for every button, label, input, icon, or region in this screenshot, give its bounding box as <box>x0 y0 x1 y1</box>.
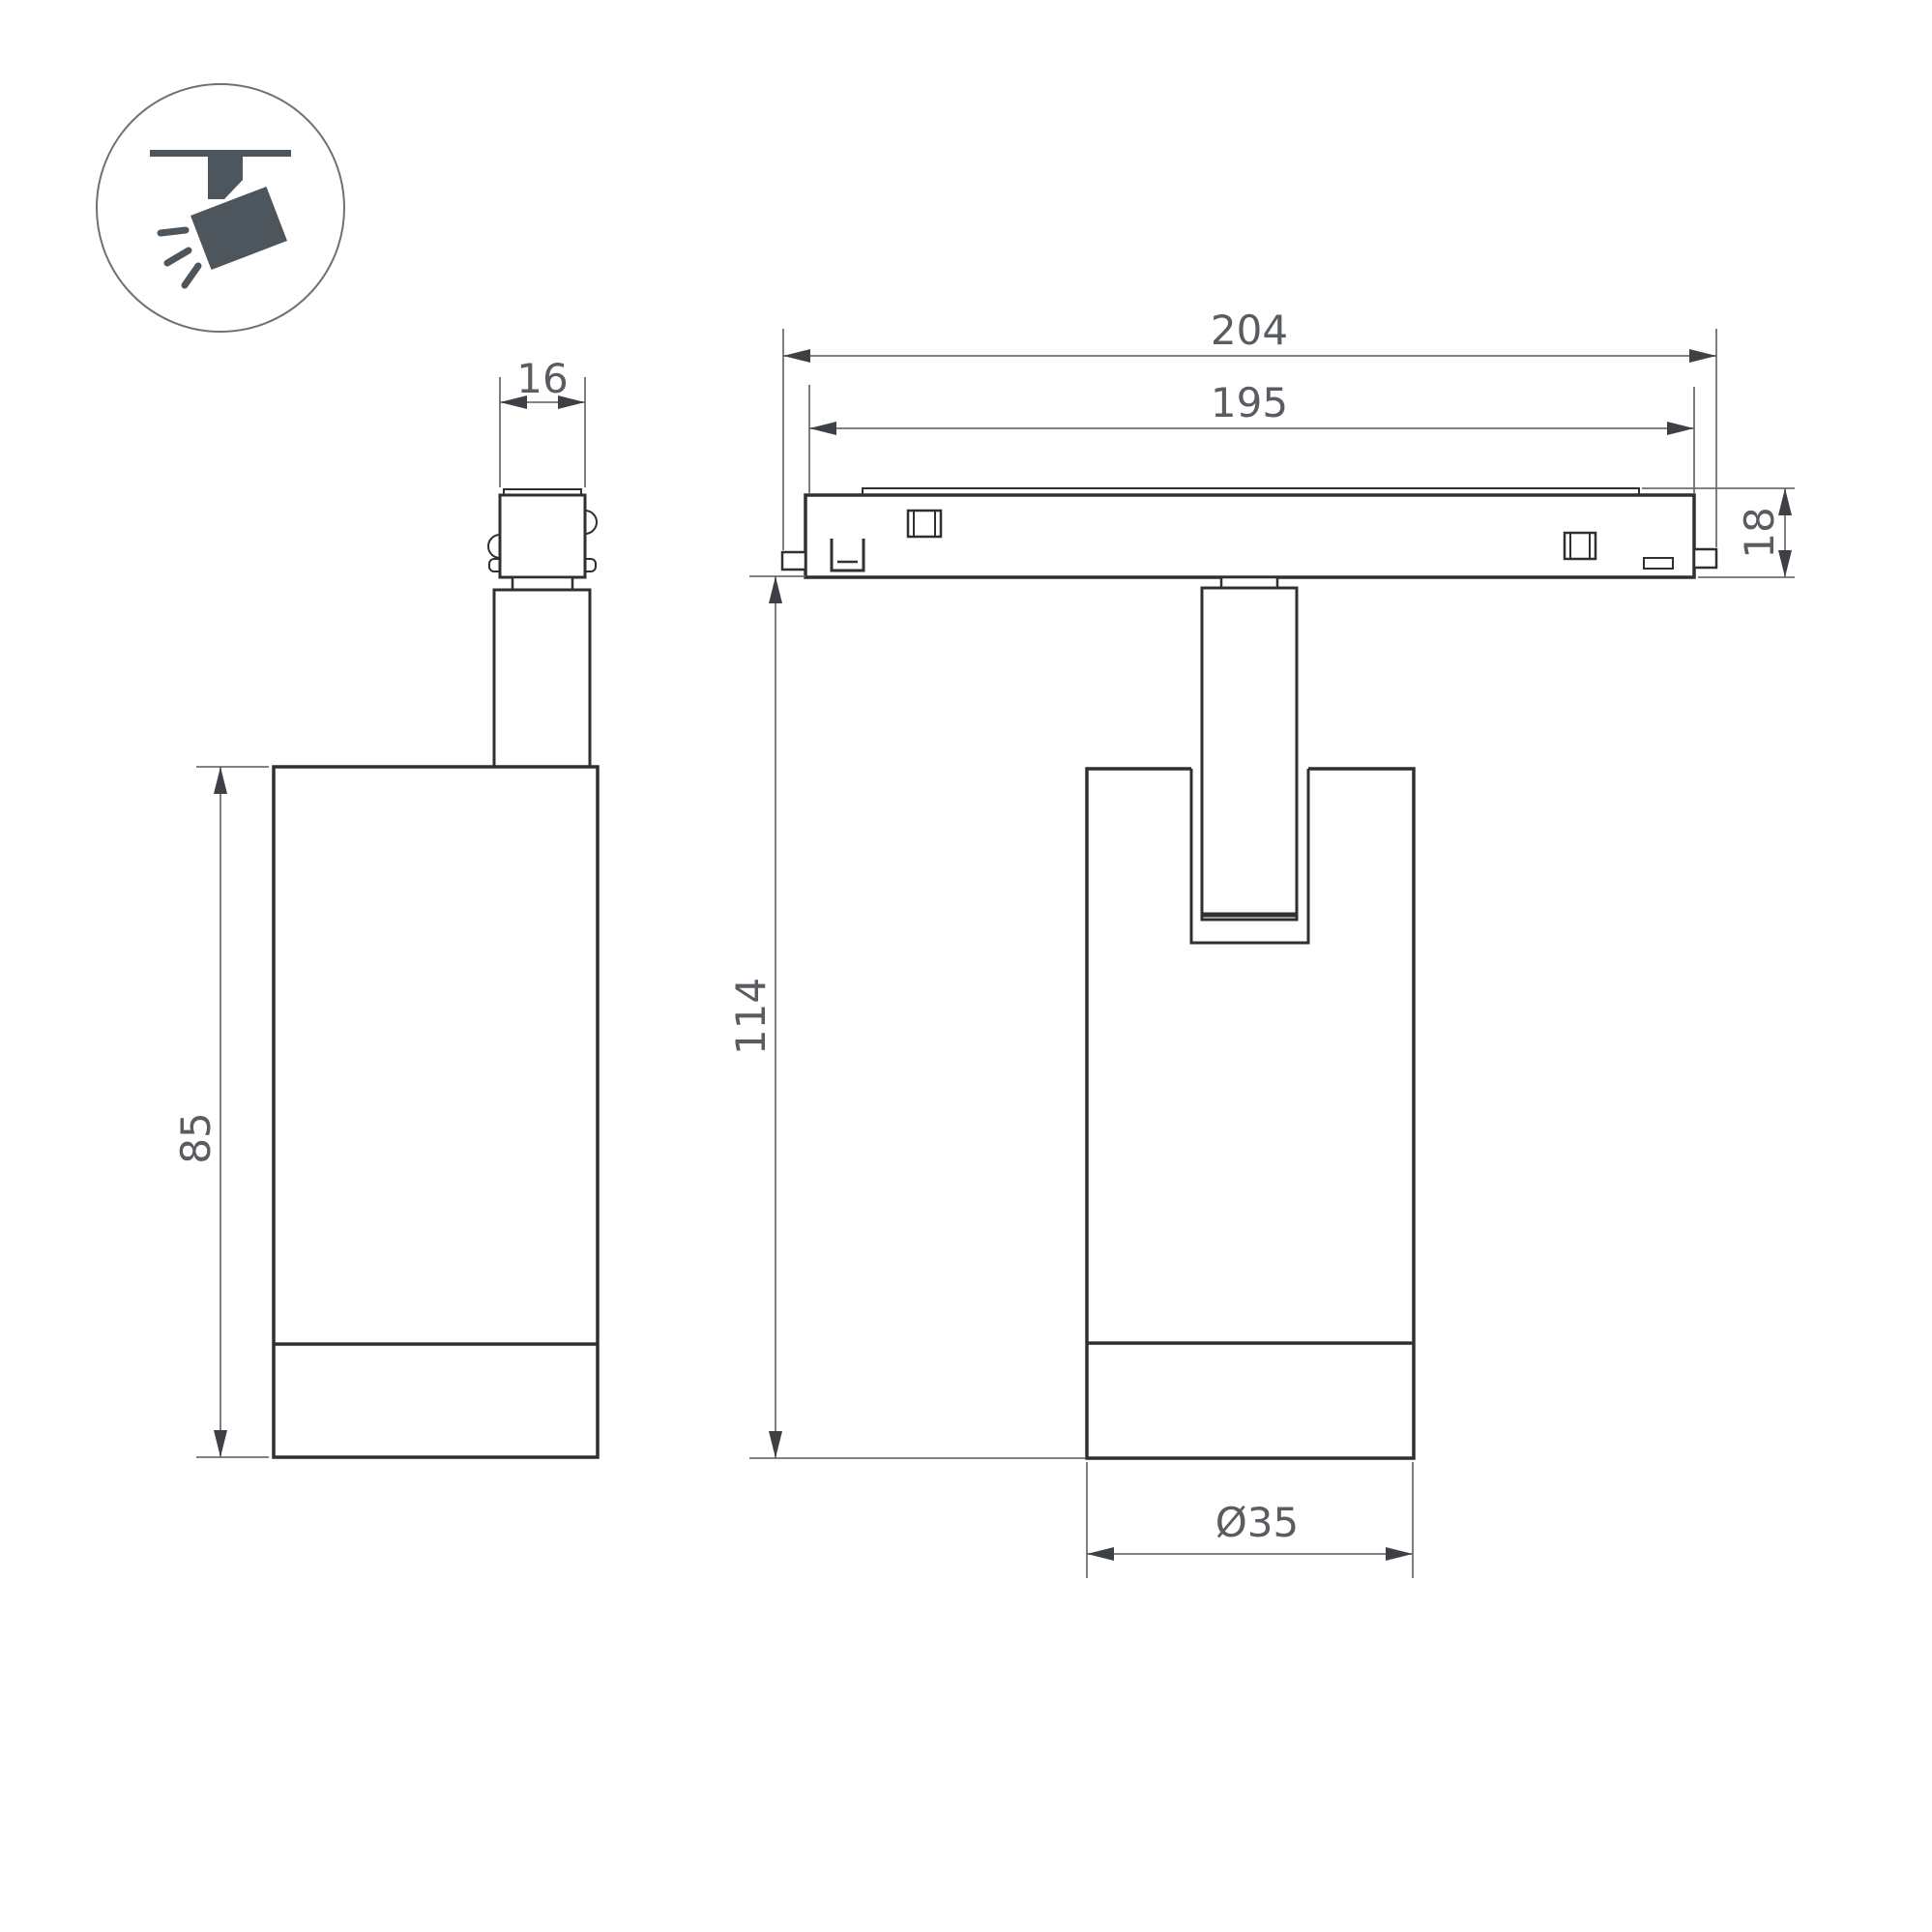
dim-label-204: 204 <box>1211 307 1288 354</box>
side-view <box>274 489 598 1457</box>
adapter-clip-left <box>488 535 500 558</box>
arrow-up-icon <box>769 576 782 603</box>
adapter-hook-left <box>489 559 500 571</box>
dim-label-18: 18 <box>1736 507 1783 558</box>
adapter-clip-right <box>585 511 597 534</box>
arrow-left-icon <box>783 349 810 363</box>
arrow-right-icon <box>1667 422 1694 435</box>
dim-label-85: 85 <box>172 1112 220 1163</box>
lamp-body-side <box>274 767 598 1457</box>
extension-lines <box>749 576 1085 1458</box>
extension-lines <box>196 767 269 1457</box>
arrow-down-icon <box>214 1430 227 1457</box>
adapter-hook-right <box>585 559 596 571</box>
dim-diameter: Ø35 <box>1087 1462 1413 1578</box>
track-end-tab-right <box>1694 549 1716 568</box>
technical-drawing-page: 16 204 195 18 85 114 <box>0 0 1932 1932</box>
dimension-drawing-canvas: 16 204 195 18 85 114 <box>0 0 1932 1932</box>
product-icon <box>97 84 344 332</box>
arrow-left-icon <box>809 422 836 435</box>
dim-label-diameter: Ø35 <box>1215 1499 1300 1546</box>
dim-label-195: 195 <box>1211 379 1288 426</box>
track-end-tab-left <box>782 552 805 570</box>
stem-front <box>1202 588 1297 920</box>
arrow-left-icon <box>1087 1547 1114 1561</box>
dim-overall-height: 114 <box>727 576 1085 1458</box>
front-view <box>782 488 1716 1458</box>
dim-label-16: 16 <box>516 355 568 402</box>
dim-body-height: 85 <box>172 767 269 1457</box>
dim-track-length: 195 <box>809 379 1694 493</box>
arrow-up-icon <box>214 767 227 794</box>
dim-label-114: 114 <box>727 978 775 1055</box>
pivot-connector <box>1221 577 1277 588</box>
arrow-down-icon <box>769 1431 782 1458</box>
adapter-neck <box>512 577 572 590</box>
dim-adapter-width: 16 <box>500 355 585 487</box>
arrow-right-icon <box>1689 349 1716 363</box>
track-adapter <box>500 495 585 577</box>
light-ray-icon <box>161 230 186 233</box>
stem-side <box>494 590 590 767</box>
arrow-right-icon <box>1386 1547 1413 1561</box>
